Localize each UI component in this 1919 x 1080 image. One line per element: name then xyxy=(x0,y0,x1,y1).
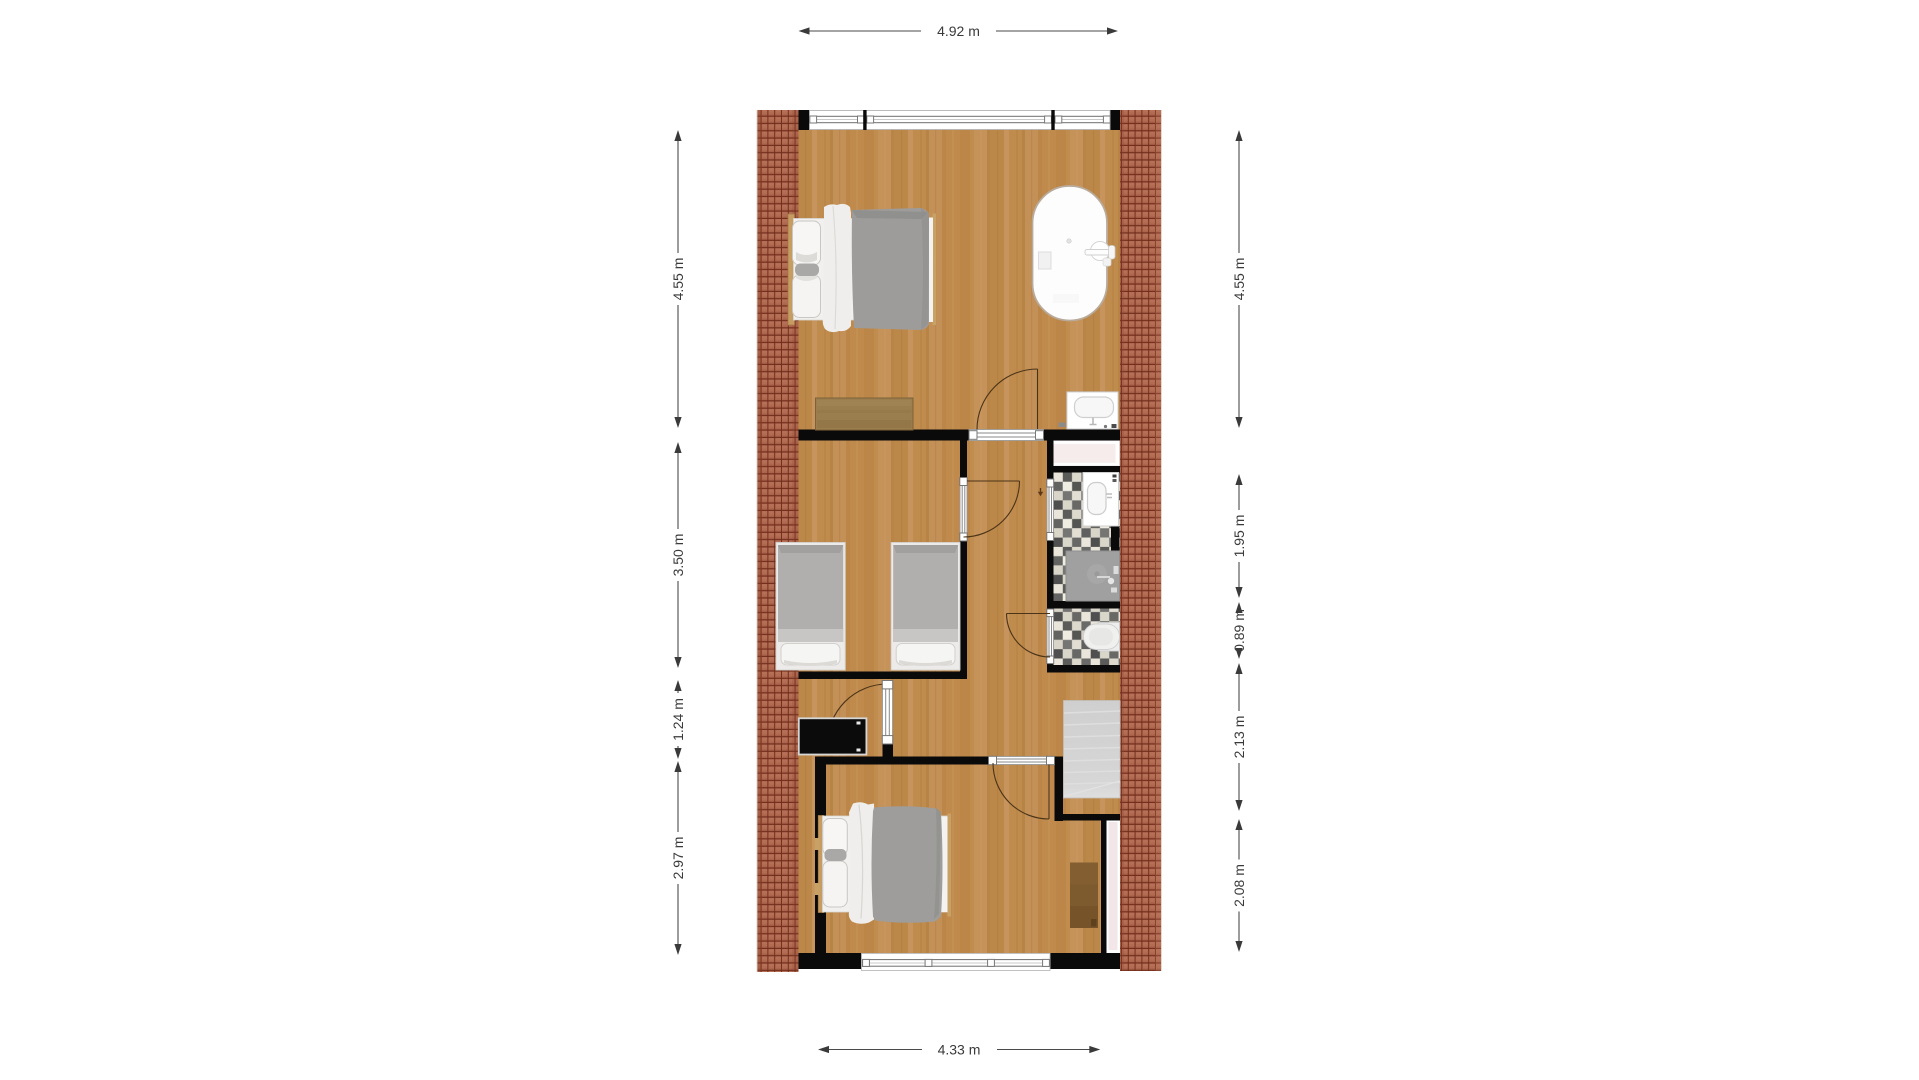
svg-text:1.24 m: 1.24 m xyxy=(670,698,686,741)
svg-text:2.97 m: 2.97 m xyxy=(670,837,686,880)
svg-text:3.50 m: 3.50 m xyxy=(670,534,686,577)
svg-text:1.95 m: 1.95 m xyxy=(1231,515,1247,558)
svg-text:4.33 m: 4.33 m xyxy=(938,1041,981,1057)
svg-text:4.55 m: 4.55 m xyxy=(670,258,686,301)
svg-text:4.92 m: 4.92 m xyxy=(937,23,980,39)
svg-text:2.13 m: 2.13 m xyxy=(1231,716,1247,759)
svg-text:0.89 m: 0.89 m xyxy=(1231,609,1247,652)
svg-text:2.08 m: 2.08 m xyxy=(1231,864,1247,907)
svg-text:4.55 m: 4.55 m xyxy=(1231,258,1247,301)
